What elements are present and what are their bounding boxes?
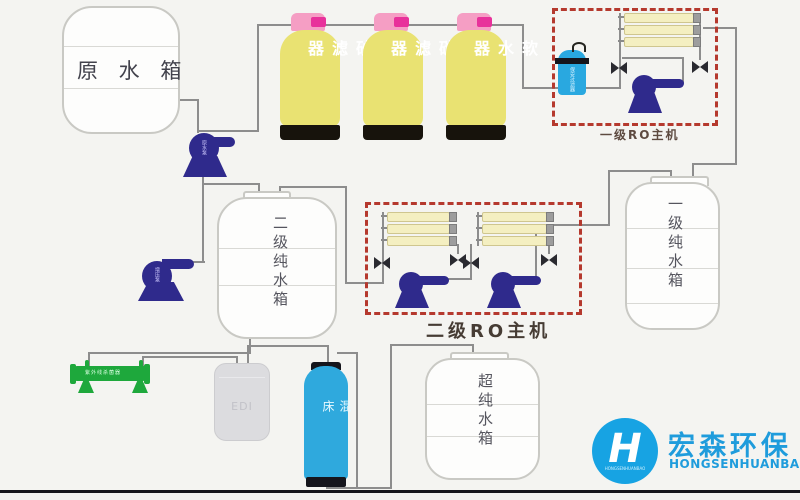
filter-base [446,125,506,140]
pipe-ro2-out-riser [608,170,610,226]
ro2-interstage-valve [463,256,479,270]
ro2-pump-a [395,270,451,308]
softener-label: 软水器 [468,40,540,65]
filter-valve-head [394,17,409,27]
ro2-feed-valve [374,256,390,270]
pipe-mixedbed-bottom [326,487,392,489]
logo-arc-text: HONGSENHUANBAO [592,466,658,471]
ro2-membranes-a [381,212,458,246]
tank-line [64,46,178,47]
process-flow-diagram: 原 水 箱 砂滤器 碳滤器 软水器 保安过滤器 一级 [0,0,800,500]
primary-pure-tank-label: 一级纯水箱 [665,196,686,291]
pipe-ro2-feed-down [345,186,347,284]
raw-water-tank-label: 原 水 箱 [77,55,188,85]
membrane-tube [482,224,547,234]
ultra-pure-tank-label: 超纯水箱 [475,373,496,449]
edi-label: EDI [215,400,269,413]
pump-skirt [487,290,521,308]
pipe-tank1-top-left [608,170,672,172]
uv-port [85,360,89,368]
pipe-edi-out [247,345,249,365]
pipe-pump2-riser [202,176,204,263]
floor-line [0,490,800,493]
ro-stage2-label: 二级RO主机 [426,317,551,343]
logo-name-en: HONGSENHUANBAO [669,457,800,471]
pump-skirt [395,290,429,308]
pipe-riser-filters [257,24,259,132]
pipe-ro1-permeate-down [735,27,737,165]
booster-pump: 增压泵 [138,255,194,301]
pipe-pump2-top [202,183,260,185]
pipe-to-uv [88,352,251,354]
tank-line [64,88,178,89]
membrane-tube [624,37,694,47]
pipe-rawtank-out [178,99,199,101]
ro1-feed-valve [611,61,627,75]
primary-pure-tank: 一级纯水箱 [625,182,720,330]
membrane-tube [624,25,694,35]
uv-port [139,360,143,368]
tank-line [627,303,718,304]
membrane-tube [387,224,450,234]
raw-water-tank: 原 水 箱 [62,6,180,134]
membrane-tube [387,236,450,246]
security-filter: 保安过滤器 [558,50,586,95]
filter-valve-head [477,17,492,27]
pump-skirt [628,93,662,113]
security-filter-handle [572,42,586,52]
logo-mark: H [592,418,658,484]
ro1-drain-valve [692,60,708,74]
membrane-tube [482,236,547,246]
membrane-tube [482,212,547,222]
ro-stage1-label: 一级RO主机 [600,126,679,143]
raw-water-pump-label: 原水泵 [201,140,206,155]
uv-foot [78,380,94,393]
raw-water-pump: 原水泵 [183,130,235,177]
filter-valve-head [311,17,326,27]
pipe-mixedbed-loop [356,352,358,488]
uv-sterilizer-label: 紫外线杀菌器 [85,371,121,376]
edi-module: EDI [214,363,270,441]
ro2-membranes-b [476,212,555,246]
ro2-pump-b [487,270,543,308]
secondary-pure-tank-label: 二级纯水箱 [270,215,291,310]
security-filter-band [555,58,589,64]
secondary-pure-tank: 二级纯水箱 [217,197,337,339]
mixed-bed-body [304,366,348,480]
membrane-tube [387,212,450,222]
company-logo: H HONGSENHUANBAO 宏森环保 HONGSENHUANBAO [592,418,792,488]
pipe-to-ultratank [390,344,474,346]
pump-skirt [183,156,227,177]
pipe-uv-to-edi [142,356,238,358]
ro1-membranes [618,13,702,47]
edi-line [219,377,265,378]
pipe-rawtank-down [197,99,199,133]
mixed-bed-label: 混床 [320,400,354,417]
security-filter-label: 保安过滤器 [569,67,574,92]
membrane-tube [624,13,694,23]
pipe-tank2-to-ro2 [279,186,347,188]
ro2-drain-valve-b [541,253,557,267]
pipe-tank1-top-right [692,163,737,165]
filter-base [280,125,340,140]
ultra-pure-tank: 超纯水箱 [425,358,540,480]
ro1-pump [628,73,668,113]
pipe-mixedbed-loop-top [337,352,357,354]
filter-base [363,125,423,140]
pipe-ultratank-riser [390,344,392,489]
mixed-bed-base [306,477,346,487]
booster-pump-label: 增压泵 [154,267,159,282]
pipe-edi-to-mixedbed [247,345,329,347]
